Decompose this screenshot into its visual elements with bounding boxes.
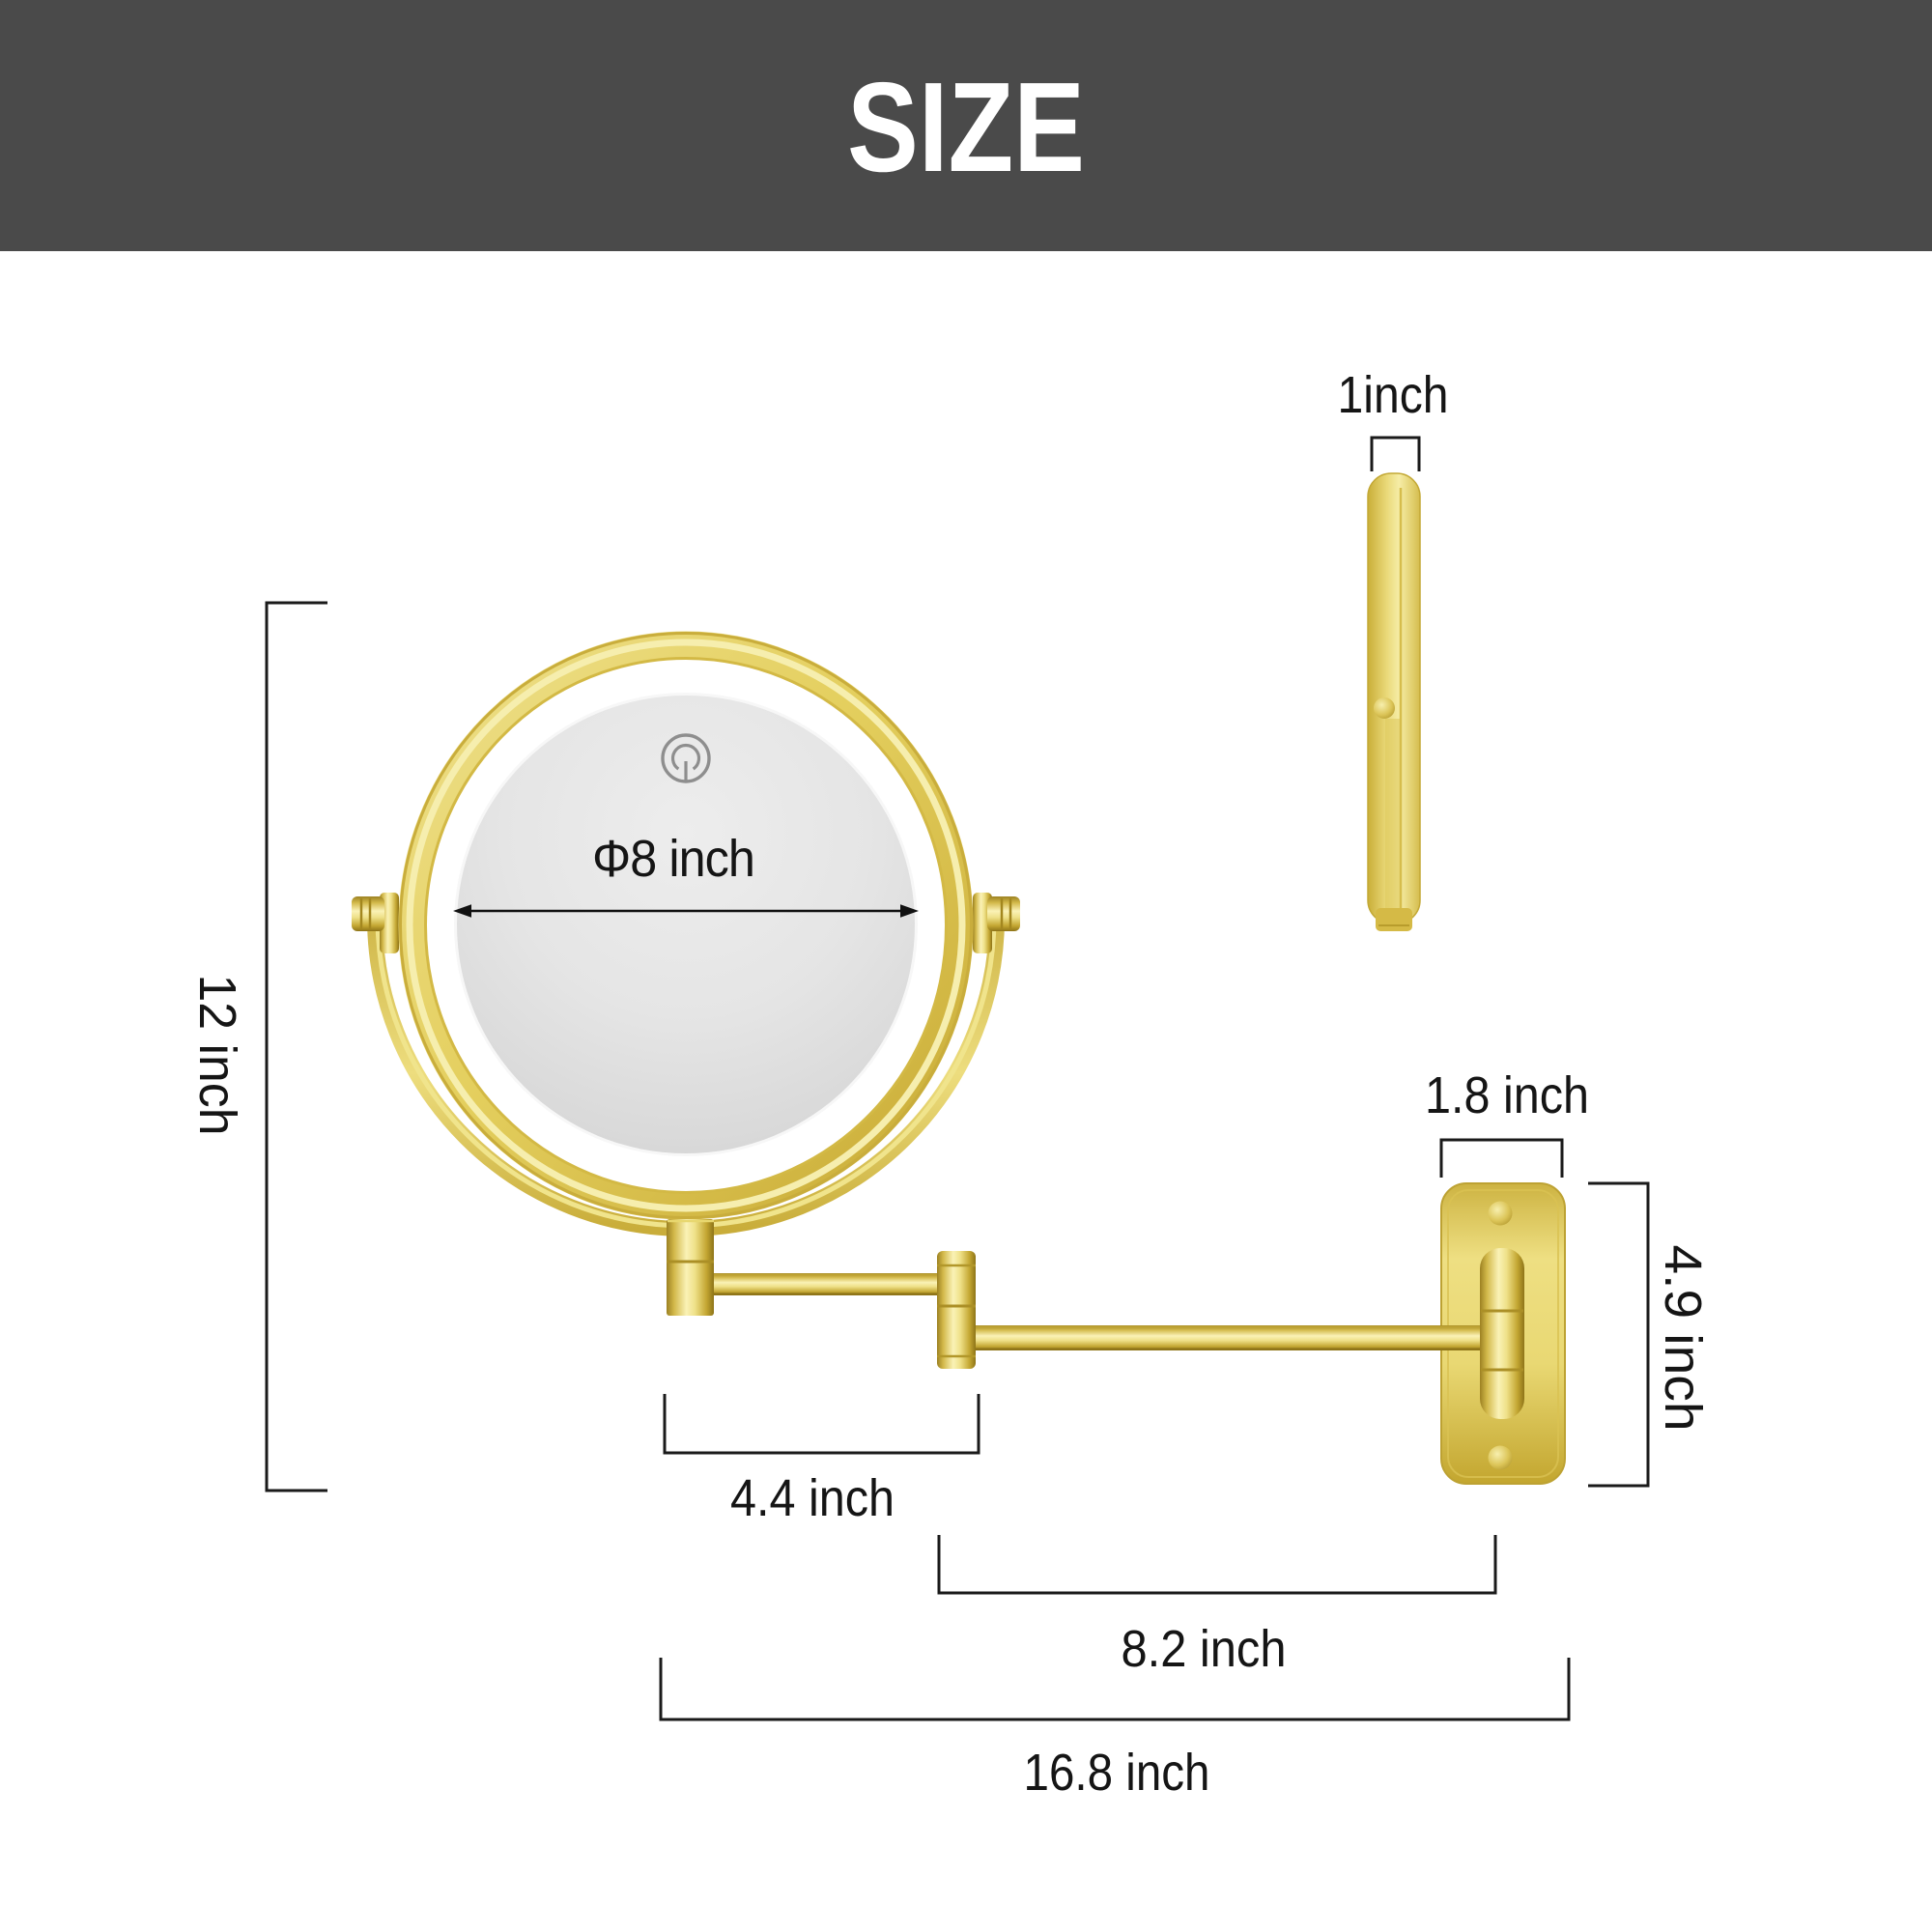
svg-text:4.9 inch: 4.9 inch [1654,1245,1712,1432]
svg-text:4.4 inch: 4.4 inch [730,1469,895,1527]
svg-text:12 inch: 12 inch [188,975,246,1136]
svg-text:1.8 inch: 1.8 inch [1425,1066,1589,1124]
svg-text:1inch: 1inch [1338,366,1449,424]
svg-text:8.2 inch: 8.2 inch [1122,1620,1287,1678]
svg-text:16.8 inch: 16.8 inch [1024,1744,1210,1802]
svg-text:SIZE: SIZE [847,56,1085,198]
svg-text:Φ8 inch: Φ8 inch [592,830,754,888]
